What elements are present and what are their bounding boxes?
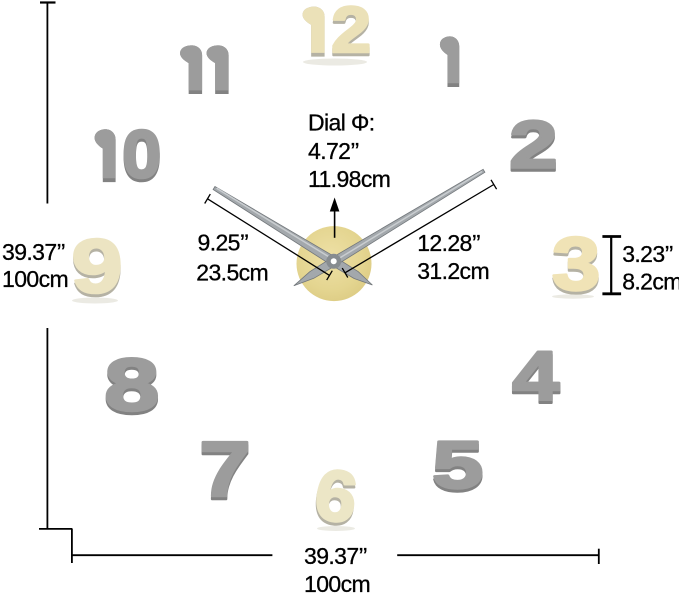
svg-text:Dial Φ:: Dial Φ: [308,110,375,136]
svg-text:3: 3 [552,222,601,306]
svg-text:9.25’’: 9.25’’ [198,229,249,255]
svg-text:12.28’’: 12.28’’ [417,230,480,256]
svg-text:11.98cm: 11.98cm [308,166,390,192]
svg-text:7: 7 [199,425,251,513]
svg-text:8.2cm: 8.2cm [622,269,679,295]
svg-text:31.2cm: 31.2cm [417,258,489,284]
svg-text:2: 2 [331,0,371,66]
svg-text:9: 9 [72,225,123,310]
svg-text:23.5cm: 23.5cm [196,259,268,285]
svg-text:8: 8 [104,344,159,427]
svg-text:3.23’’: 3.23’’ [622,241,673,267]
svg-text:0: 0 [122,117,161,193]
svg-text:39.37’’: 39.37’’ [2,239,65,265]
svg-text:100cm: 100cm [304,571,370,595]
svg-text:2: 2 [509,108,557,183]
svg-text:5: 5 [432,428,483,503]
svg-text:100cm: 100cm [2,266,68,292]
svg-text:39.37’’: 39.37’’ [304,543,367,569]
svg-text:4: 4 [512,337,559,415]
svg-text:4.72’’: 4.72’’ [308,138,359,164]
